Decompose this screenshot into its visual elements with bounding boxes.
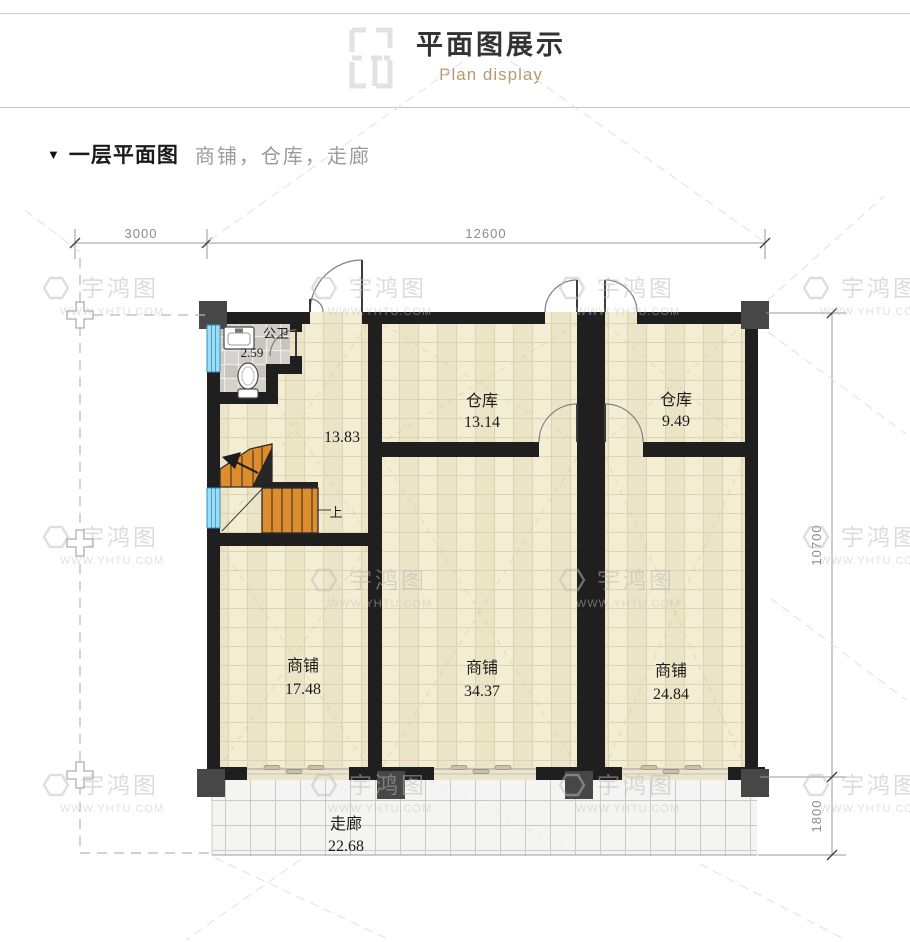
watermark-brand: 宇鸿图: [81, 525, 159, 550]
dim-top-left: 3000: [125, 226, 158, 241]
watermark-brand: 宇鸿图: [841, 773, 910, 798]
toilet-icon: [238, 363, 258, 398]
page: 平面图展示 Plan display ▼ 一层平面图 商铺，仓库，走廊: [0, 0, 910, 942]
watermark-brand: 宇鸿图: [841, 276, 910, 301]
dimension-right: 10700 1800: [758, 308, 846, 860]
wall-b: [577, 324, 605, 767]
watermark-brand: 宇鸿图: [597, 773, 675, 798]
window-stairs: [207, 488, 220, 528]
room-label-warehouse2-name: 仓库: [660, 391, 692, 409]
watermark-url: WWW.YHTU.COM: [328, 803, 432, 815]
watermark-url: WWW.YHTU.COM: [328, 598, 432, 610]
watermark-url: WWW.YHTU.COM: [60, 306, 164, 318]
watermark-url: WWW.YHTU.COM: [576, 803, 680, 815]
room-label-corridor-area: 22.68: [328, 838, 364, 855]
watermark-brand: 宇鸿图: [81, 276, 159, 301]
room-label-warehouse1-name: 仓库: [466, 392, 498, 410]
watermark-brand: 宇鸿图: [349, 276, 427, 301]
stairs-up-label: 上: [329, 505, 342, 520]
room-label-warehouse2-area: 9.49: [662, 413, 690, 430]
room-label-warehouse1-area: 13.14: [464, 414, 500, 431]
room-label-shop1-name: 商铺: [287, 657, 319, 675]
wall-c-left: [382, 442, 539, 457]
watermark-brand: 宇鸿图: [349, 773, 427, 798]
watermark-brand: 宇鸿图: [349, 568, 427, 593]
room-label-shop1-area: 17.48: [285, 681, 321, 698]
room-label-shop3-area: 24.84: [653, 686, 689, 703]
wall-d: [220, 533, 368, 546]
watermark-url: WWW.YHTU.COM: [576, 306, 680, 318]
floor-plan: 公卫 2.59 13.83 仓库 13.14 仓库 9.49 商铺 17.48 …: [0, 0, 910, 942]
watermark-url: WWW.YHTU.COM: [820, 555, 910, 567]
room-label-corridor-name: 走廊: [330, 815, 362, 833]
room-label-bathroom-area: 2.59: [241, 345, 264, 360]
watermark-url: WWW.YHTU.COM: [60, 803, 164, 815]
watermark-url: WWW.YHTU.COM: [60, 555, 164, 567]
watermark-url: WWW.YHTU.COM: [820, 306, 910, 318]
watermark-url: WWW.YHTU.COM: [576, 598, 680, 610]
wall-c-right: [643, 442, 745, 457]
dim-top-span: 12600: [465, 226, 506, 241]
room-label-shop3-name: 商铺: [655, 662, 687, 680]
room-label-shop2-area: 34.37: [464, 683, 500, 700]
watermark-brand: 宇鸿图: [841, 525, 910, 550]
room-label-bathroom-name: 公卫: [263, 326, 289, 341]
watermark-brand: 宇鸿图: [597, 276, 675, 301]
watermark-brand: 宇鸿图: [597, 568, 675, 593]
dimension-top: 3000 12600: [70, 226, 770, 259]
window-bathroom: [207, 325, 220, 372]
wall-a: [368, 324, 382, 767]
corridor-floor: [212, 780, 757, 855]
watermark-url: WWW.YHTU.COM: [820, 803, 910, 815]
watermark-url: WWW.YHTU.COM: [328, 306, 432, 318]
watermark-brand: 宇鸿图: [81, 773, 159, 798]
room-label-hall-area: 13.83: [324, 429, 360, 446]
room-label-shop2-name: 商铺: [466, 659, 498, 677]
